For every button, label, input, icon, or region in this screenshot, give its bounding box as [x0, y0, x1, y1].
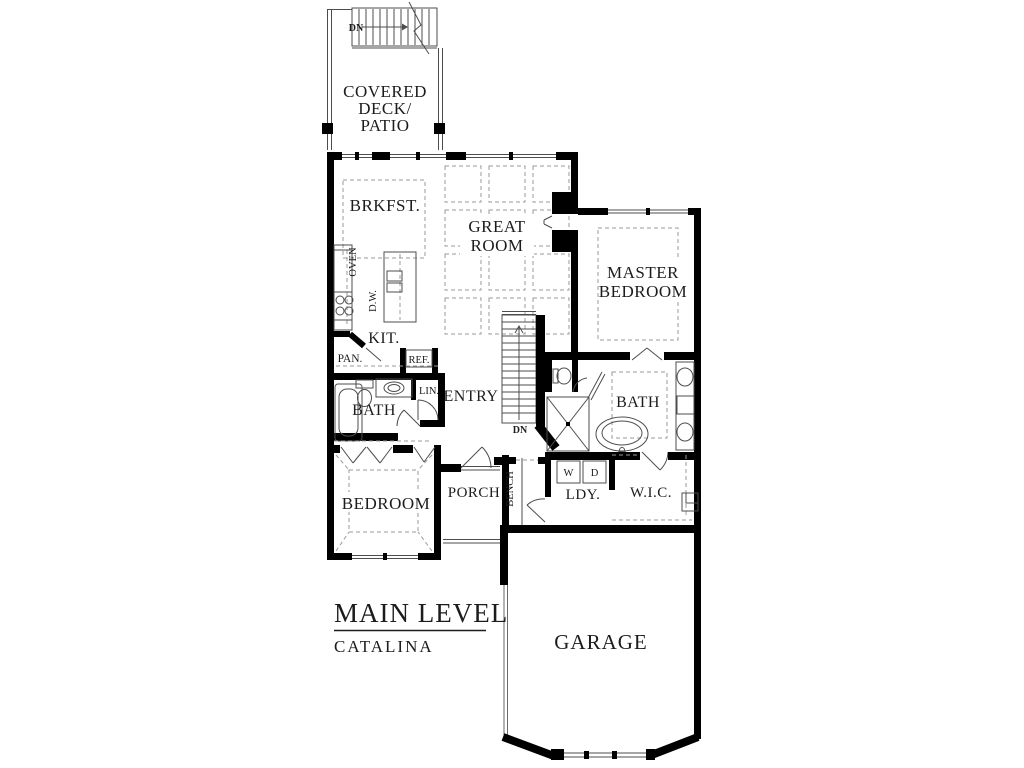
- deck-stairs: DN: [349, 2, 437, 54]
- ceiling-detail: [343, 180, 425, 258]
- cooktop: [334, 292, 353, 320]
- window: [390, 152, 446, 160]
- master-bath-label: BATH: [616, 394, 660, 411]
- master-bedroom-label-2: BEDROOM: [599, 282, 688, 301]
- great-room-label-2: ROOM: [470, 236, 523, 255]
- window: [352, 553, 418, 560]
- entry: ENTRY: [441, 388, 509, 472]
- double-vanity: [676, 362, 694, 450]
- pantry-label: PAN.: [338, 353, 363, 365]
- window: [342, 152, 372, 160]
- wic-label: W.I.C.: [630, 485, 672, 501]
- deck-stairs-dn-label: DN: [349, 23, 364, 34]
- breakfast-label: BRKFST.: [350, 196, 421, 215]
- refrigerator: REF.: [400, 348, 438, 374]
- deck-post: [434, 123, 445, 134]
- soaking-tub: [596, 417, 648, 453]
- sink: [677, 423, 693, 441]
- linen-label: LIN.: [419, 386, 439, 397]
- sink: [677, 368, 693, 386]
- plan-title: MAIN LEVEL: [334, 598, 508, 628]
- fireplace: [544, 192, 578, 252]
- hall-bath-label: BATH: [352, 402, 396, 419]
- bath-door: [397, 410, 420, 426]
- laundry-door: [527, 499, 545, 522]
- floor-plan-drawing: COVERED DECK/ PATIO DN: [0, 0, 1024, 768]
- toilet-compartment: [545, 357, 587, 392]
- double-door: [632, 348, 662, 360]
- bedroom: BEDROOM: [327, 445, 441, 560]
- washer: W: [557, 461, 580, 483]
- mud-hall: BENCH: [502, 455, 545, 533]
- front-door: [461, 447, 491, 468]
- garage-door: [551, 749, 655, 760]
- porch: PORCH: [443, 485, 502, 543]
- linen-door: [418, 400, 438, 420]
- garage: GARAGE: [500, 525, 701, 760]
- breakfast-room: BRKFST.: [343, 180, 425, 258]
- floor-plan-image: COVERED DECK/ PATIO DN: [0, 0, 1024, 768]
- deck-post: [322, 123, 333, 134]
- dryer: D: [583, 461, 606, 483]
- dishwasher-label: D.W.: [368, 290, 379, 312]
- window: [608, 208, 688, 215]
- great-room-label-1: GREAT: [468, 217, 525, 236]
- angled-wall: [649, 737, 698, 756]
- toilet: [557, 368, 571, 384]
- window: [466, 152, 556, 160]
- dryer-label: D: [591, 468, 599, 479]
- kitchen-island: [384, 252, 416, 322]
- vanity-sink: [376, 379, 412, 397]
- plan-subtitle: CATALINA: [334, 637, 434, 656]
- arrow-head-icon: [402, 24, 408, 31]
- title-block: MAIN LEVEL CATALINA: [334, 598, 508, 656]
- great-room: GREAT ROOM: [445, 166, 578, 334]
- covered-deck: COVERED DECK/ PATIO: [322, 10, 445, 151]
- main-stairs-dn-label: DN: [513, 425, 528, 436]
- laundry: W D LDY.: [527, 452, 701, 533]
- bench-label: BENCH: [505, 471, 516, 507]
- porch-label: PORCH: [448, 485, 501, 501]
- angled-wall: [503, 737, 554, 756]
- kitchen-label: KIT.: [368, 330, 399, 347]
- entry-label: ENTRY: [444, 388, 499, 405]
- garage-label: GARAGE: [554, 630, 648, 654]
- refrigerator-label: REF.: [408, 355, 429, 366]
- covered-deck-label-3: PATIO: [360, 116, 409, 135]
- wic-door: [642, 452, 668, 470]
- kitchen: OVEN D.W. KIT. PAN. REF.: [334, 245, 440, 374]
- washer-label: W: [564, 468, 574, 479]
- oven-label: OVEN: [348, 247, 359, 277]
- master-bedroom-label-1: MASTER: [607, 263, 679, 282]
- door-leaf: [366, 348, 381, 361]
- bifold-doors: [341, 447, 435, 463]
- bedroom-label: BEDROOM: [342, 494, 431, 513]
- hall-bath: BATH LIN.: [327, 373, 445, 441]
- laundry-label: LDY.: [566, 487, 601, 503]
